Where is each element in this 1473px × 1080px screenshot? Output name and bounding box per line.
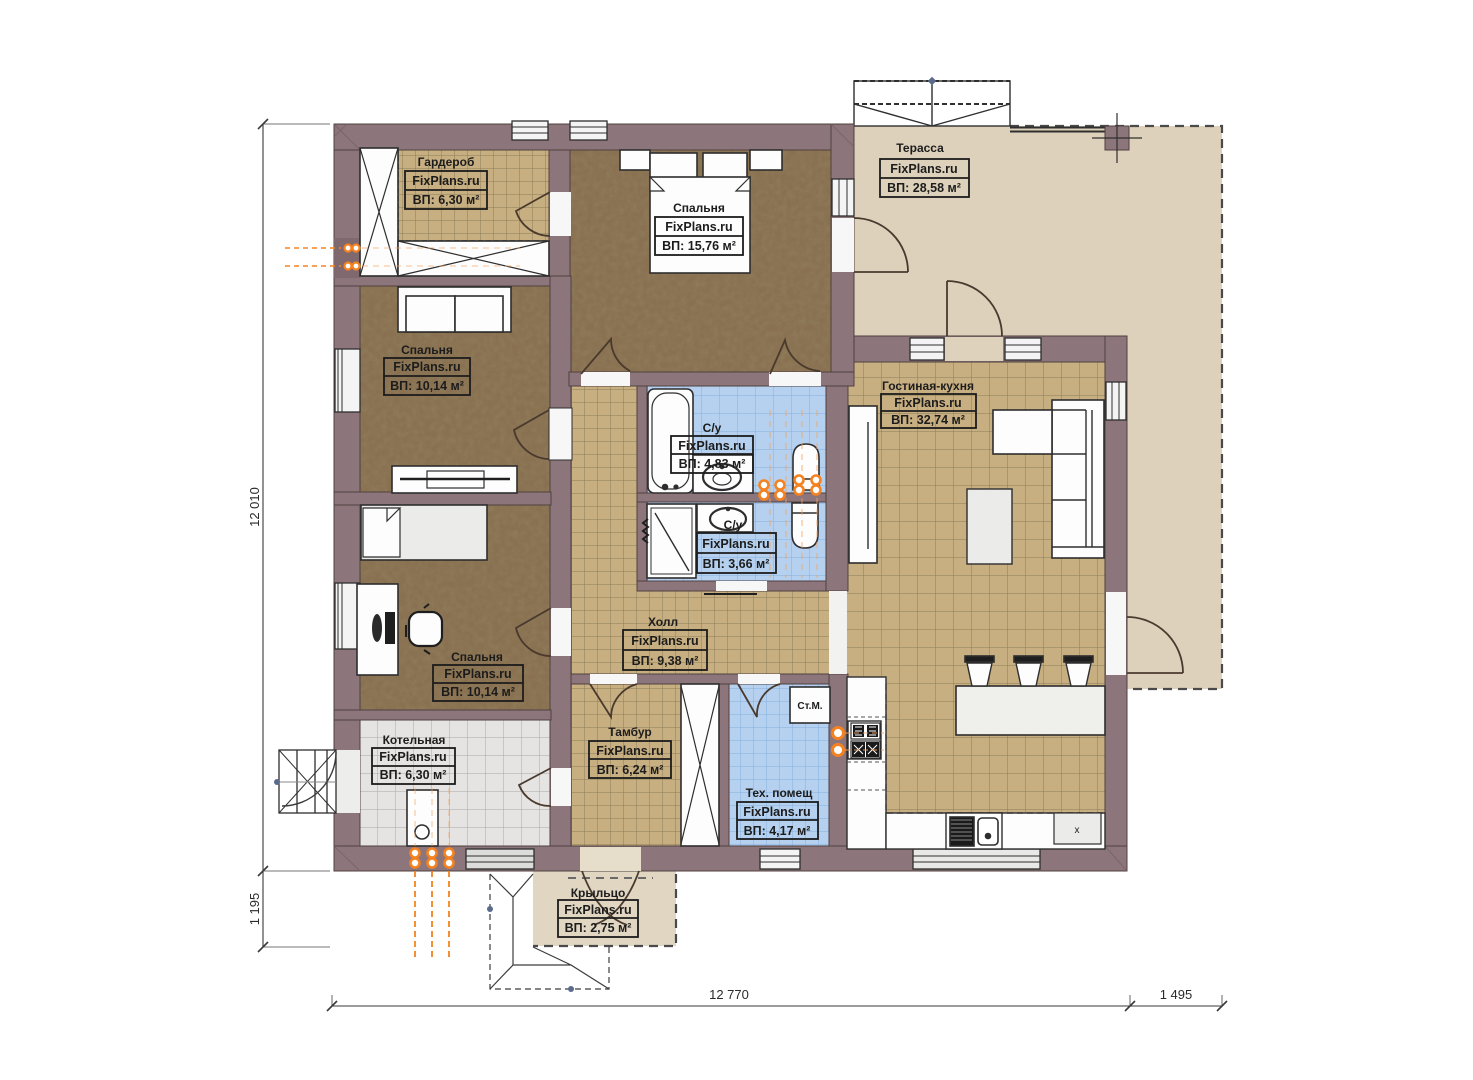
svg-text:Крыльцо: Крыльцо: [571, 886, 626, 900]
svg-text:Котельная: Котельная: [383, 733, 446, 747]
svg-text:ВП: 15,76 м²: ВП: 15,76 м²: [662, 239, 736, 253]
svg-text:ВП: 6,30 м²: ВП: 6,30 м²: [413, 193, 480, 207]
svg-text:Тех. помещ: Тех. помещ: [746, 786, 814, 800]
svg-text:Спальня: Спальня: [401, 343, 453, 357]
svg-text:Спальня: Спальня: [451, 650, 503, 664]
svg-text:FixPlans.ru: FixPlans.ru: [564, 903, 631, 917]
svg-text:ВП: 4,17 м²: ВП: 4,17 м²: [744, 824, 811, 838]
svg-text:FixPlans.ru: FixPlans.ru: [596, 744, 663, 758]
svg-text:ВП: 4,83 м²: ВП: 4,83 м²: [679, 457, 746, 471]
svg-text:ВП: 6,24 м²: ВП: 6,24 м²: [597, 763, 664, 777]
svg-text:ВП: 28,58 м²: ВП: 28,58 м²: [887, 181, 961, 195]
svg-text:FixPlans.ru: FixPlans.ru: [393, 360, 460, 374]
svg-text:ВП: 9,38 м²: ВП: 9,38 м²: [632, 654, 699, 668]
svg-text:ВП: 2,75 м²: ВП: 2,75 м²: [565, 921, 632, 935]
svg-text:FixPlans.ru: FixPlans.ru: [890, 162, 957, 176]
svg-text:FixPlans.ru: FixPlans.ru: [894, 396, 961, 410]
svg-text:С/у: С/у: [724, 518, 743, 532]
svg-text:FixPlans.ru: FixPlans.ru: [678, 439, 745, 453]
svg-text:1 195: 1 195: [247, 893, 262, 926]
svg-text:Холл: Холл: [648, 615, 678, 629]
svg-text:FixPlans.ru: FixPlans.ru: [702, 537, 769, 551]
svg-text:Тамбур: Тамбур: [608, 725, 652, 739]
svg-text:Гостиная-кухня: Гостиная-кухня: [882, 379, 974, 393]
svg-text:FixPlans.ru: FixPlans.ru: [631, 634, 698, 648]
svg-text:С/у: С/у: [703, 421, 722, 435]
svg-text:FixPlans.ru: FixPlans.ru: [412, 174, 479, 188]
svg-text:ВП: 6,30 м²: ВП: 6,30 м²: [380, 768, 447, 782]
svg-text:12 010: 12 010: [247, 487, 262, 527]
svg-text:FixPlans.ru: FixPlans.ru: [665, 220, 732, 234]
svg-text:ВП: 32,74 м²: ВП: 32,74 м²: [891, 413, 965, 427]
svg-text:12 770: 12 770: [709, 987, 749, 1002]
svg-text:x: x: [1075, 825, 1080, 836]
svg-text:Гардероб: Гардероб: [418, 155, 475, 169]
svg-text:FixPlans.ru: FixPlans.ru: [444, 667, 511, 681]
svg-text:Спальня: Спальня: [673, 201, 725, 215]
svg-text:Ст.М.: Ст.М.: [797, 701, 822, 712]
svg-text:ВП: 3,66 м²: ВП: 3,66 м²: [703, 557, 770, 571]
svg-text:ВП: 10,14 м²: ВП: 10,14 м²: [390, 379, 464, 393]
svg-text:Терасса: Терасса: [896, 141, 944, 155]
svg-text:ВП: 10,14 м²: ВП: 10,14 м²: [441, 685, 515, 699]
svg-text:FixPlans.ru: FixPlans.ru: [743, 805, 810, 819]
svg-text:1 495: 1 495: [1160, 987, 1193, 1002]
svg-text:FixPlans.ru: FixPlans.ru: [379, 750, 446, 764]
